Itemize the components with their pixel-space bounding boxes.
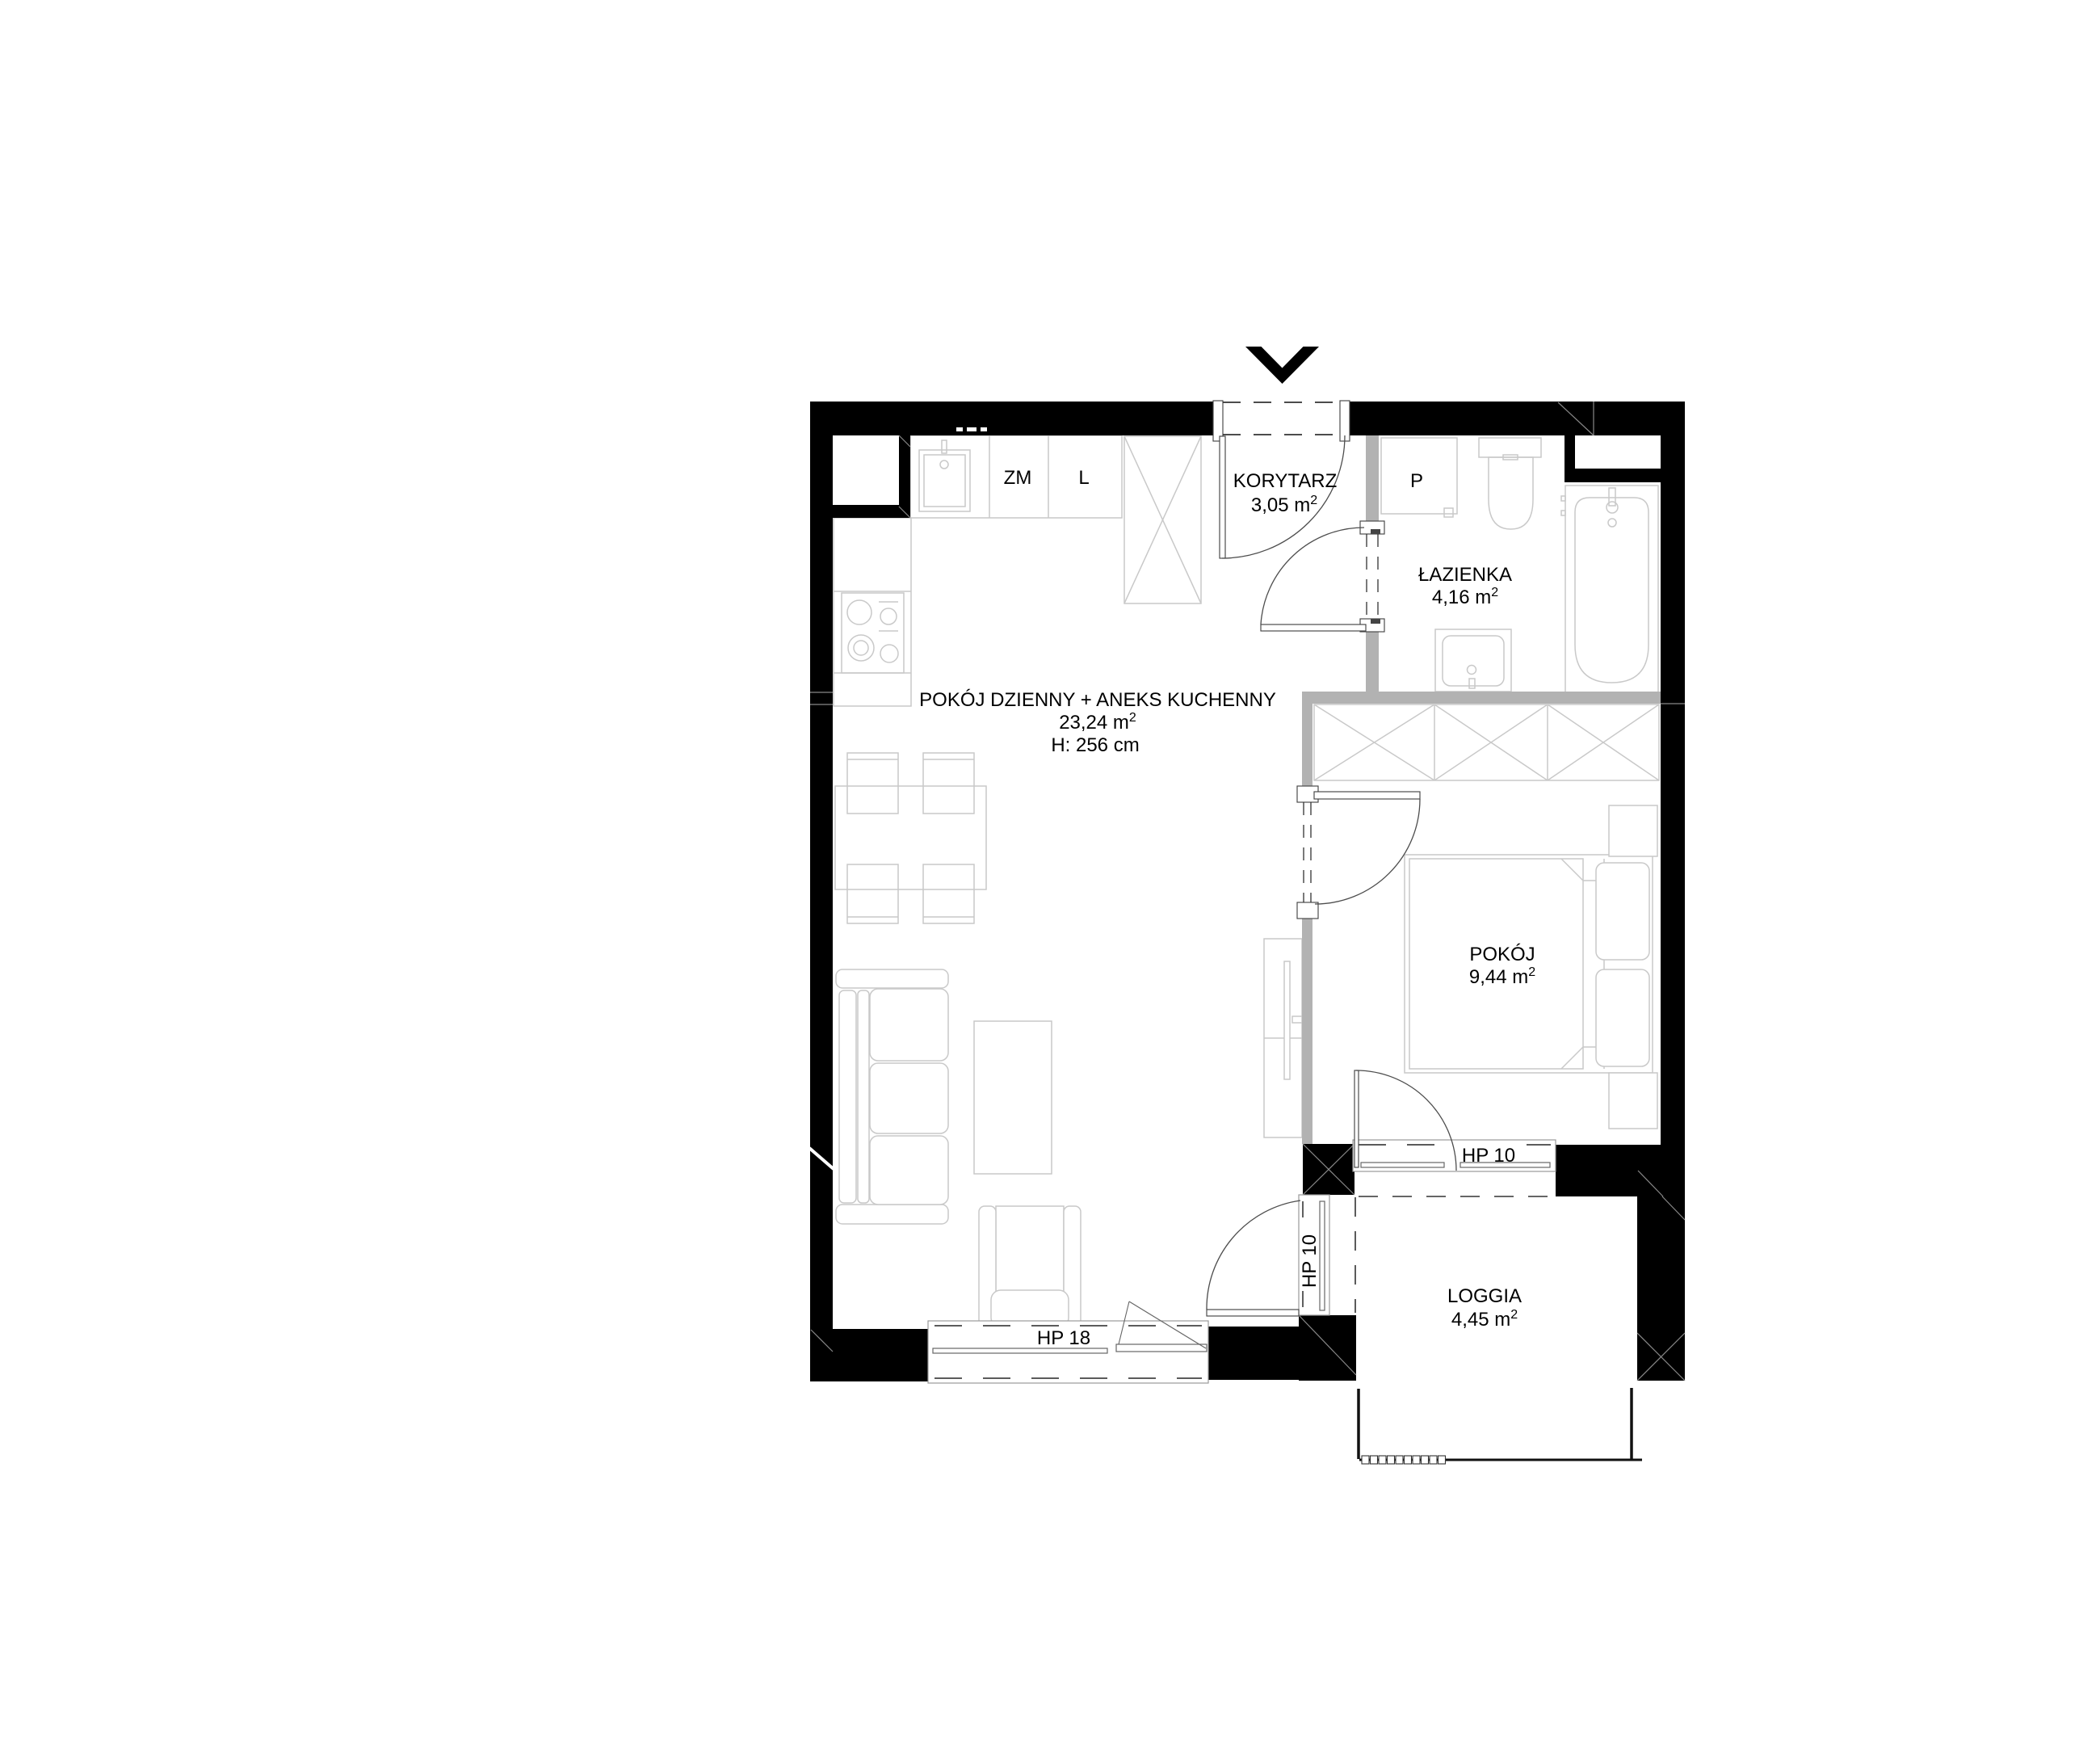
svg-text:23,24 m2: 23,24 m2 — [1059, 711, 1136, 734]
svg-text:ZM: ZM — [1004, 467, 1032, 489]
svg-text:4,45 m2: 4,45 m2 — [1451, 1308, 1518, 1331]
svg-text:HP 10: HP 10 — [1299, 1234, 1321, 1288]
svg-text:4,16 m2: 4,16 m2 — [1432, 586, 1498, 608]
svg-text:POKÓJ DZIENNY + ANEKS KUCHENNY: POKÓJ DZIENNY + ANEKS KUCHENNY — [919, 689, 1276, 711]
svg-text:LOGGIA: LOGGIA — [1447, 1285, 1522, 1307]
svg-text:3,05 m2: 3,05 m2 — [1251, 494, 1317, 516]
svg-text:KORYTARZ: KORYTARZ — [1233, 470, 1337, 492]
svg-text:HP 18: HP 18 — [1037, 1327, 1090, 1349]
svg-text:9,44 m2: 9,44 m2 — [1469, 965, 1535, 988]
svg-text:H: 256 cm: H: 256 cm — [1051, 734, 1139, 756]
svg-text:P: P — [1410, 470, 1423, 492]
svg-text:L: L — [1078, 467, 1089, 489]
svg-text:ŁAZIENKA: ŁAZIENKA — [1418, 564, 1512, 586]
svg-text:HP 10: HP 10 — [1462, 1145, 1515, 1167]
svg-text:POKÓJ: POKÓJ — [1469, 944, 1535, 965]
